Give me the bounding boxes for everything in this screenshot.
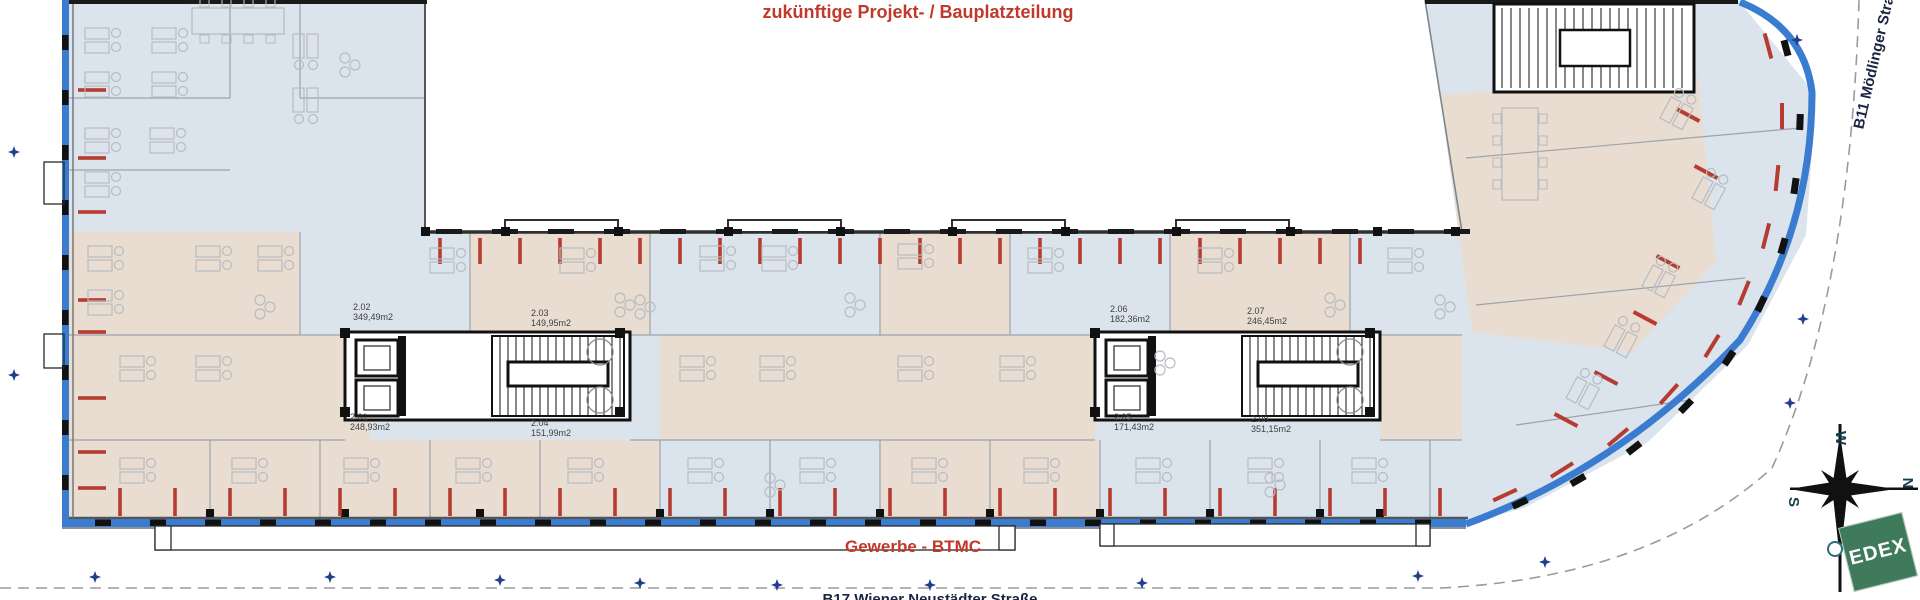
room-id: 2.06: [1110, 304, 1150, 314]
room-label-2-06: 2.06 182,36m2: [1110, 304, 1150, 325]
room-label-2-03: 2.03 149,95m2: [531, 308, 571, 329]
street-label-b17: B17 Wiener Neustädter Straße: [750, 591, 1110, 600]
room-id: 2.04: [531, 418, 571, 428]
room-label-2-05: 2.05 171,43m2: [1114, 412, 1154, 433]
floor-plan-drawing: WNSE: [0, 0, 1920, 600]
room-label-2-08: 2.08 351,15m2: [1251, 414, 1291, 435]
room-area: 246,45m2: [1247, 316, 1287, 326]
compass-letter-s: S: [1785, 497, 1802, 507]
room-label-2-01: 2.01 248,93m2: [350, 412, 390, 433]
room-area: 171,43m2: [1114, 422, 1154, 432]
room-id: 2.07: [1247, 306, 1287, 316]
room-id: 2.03: [531, 308, 571, 318]
annotation-gewerbe-btmc: Gewerbe - BTMC: [763, 537, 1063, 557]
room-area: 182,36m2: [1110, 314, 1150, 324]
room-id: 2.01: [350, 412, 390, 422]
floor-plan-page: WNSE zukünftige Projekt- / Bauplatzteilu…: [0, 0, 1920, 600]
room-id: 2.05: [1114, 412, 1154, 422]
room-area: 351,15m2: [1251, 424, 1291, 434]
stair-elevator-core: [340, 328, 630, 420]
room-id: 2.02: [353, 302, 393, 312]
stair-elevator-core: [1090, 328, 1380, 420]
room-label-2-02: 2.02 349,49m2: [353, 302, 393, 323]
room-area: 349,49m2: [353, 312, 393, 322]
room-area: 149,95m2: [531, 318, 571, 328]
room-id: 2.08: [1251, 414, 1291, 424]
room-label-2-07: 2.07 246,45m2: [1247, 306, 1287, 327]
room-label-2-04: 2.04 151,99m2: [531, 418, 571, 439]
top-right-staircase: [1494, 4, 1694, 92]
compass-letter-w: W: [1832, 431, 1849, 446]
annotation-future-project: zukünftige Projekt- / Bauplatzteilung: [688, 2, 1148, 23]
room-area: 248,93m2: [350, 422, 390, 432]
room-area: 151,99m2: [531, 428, 571, 438]
edex-logo-text: EDEX: [1847, 534, 1909, 570]
compass-letter-n: N: [1899, 478, 1916, 489]
